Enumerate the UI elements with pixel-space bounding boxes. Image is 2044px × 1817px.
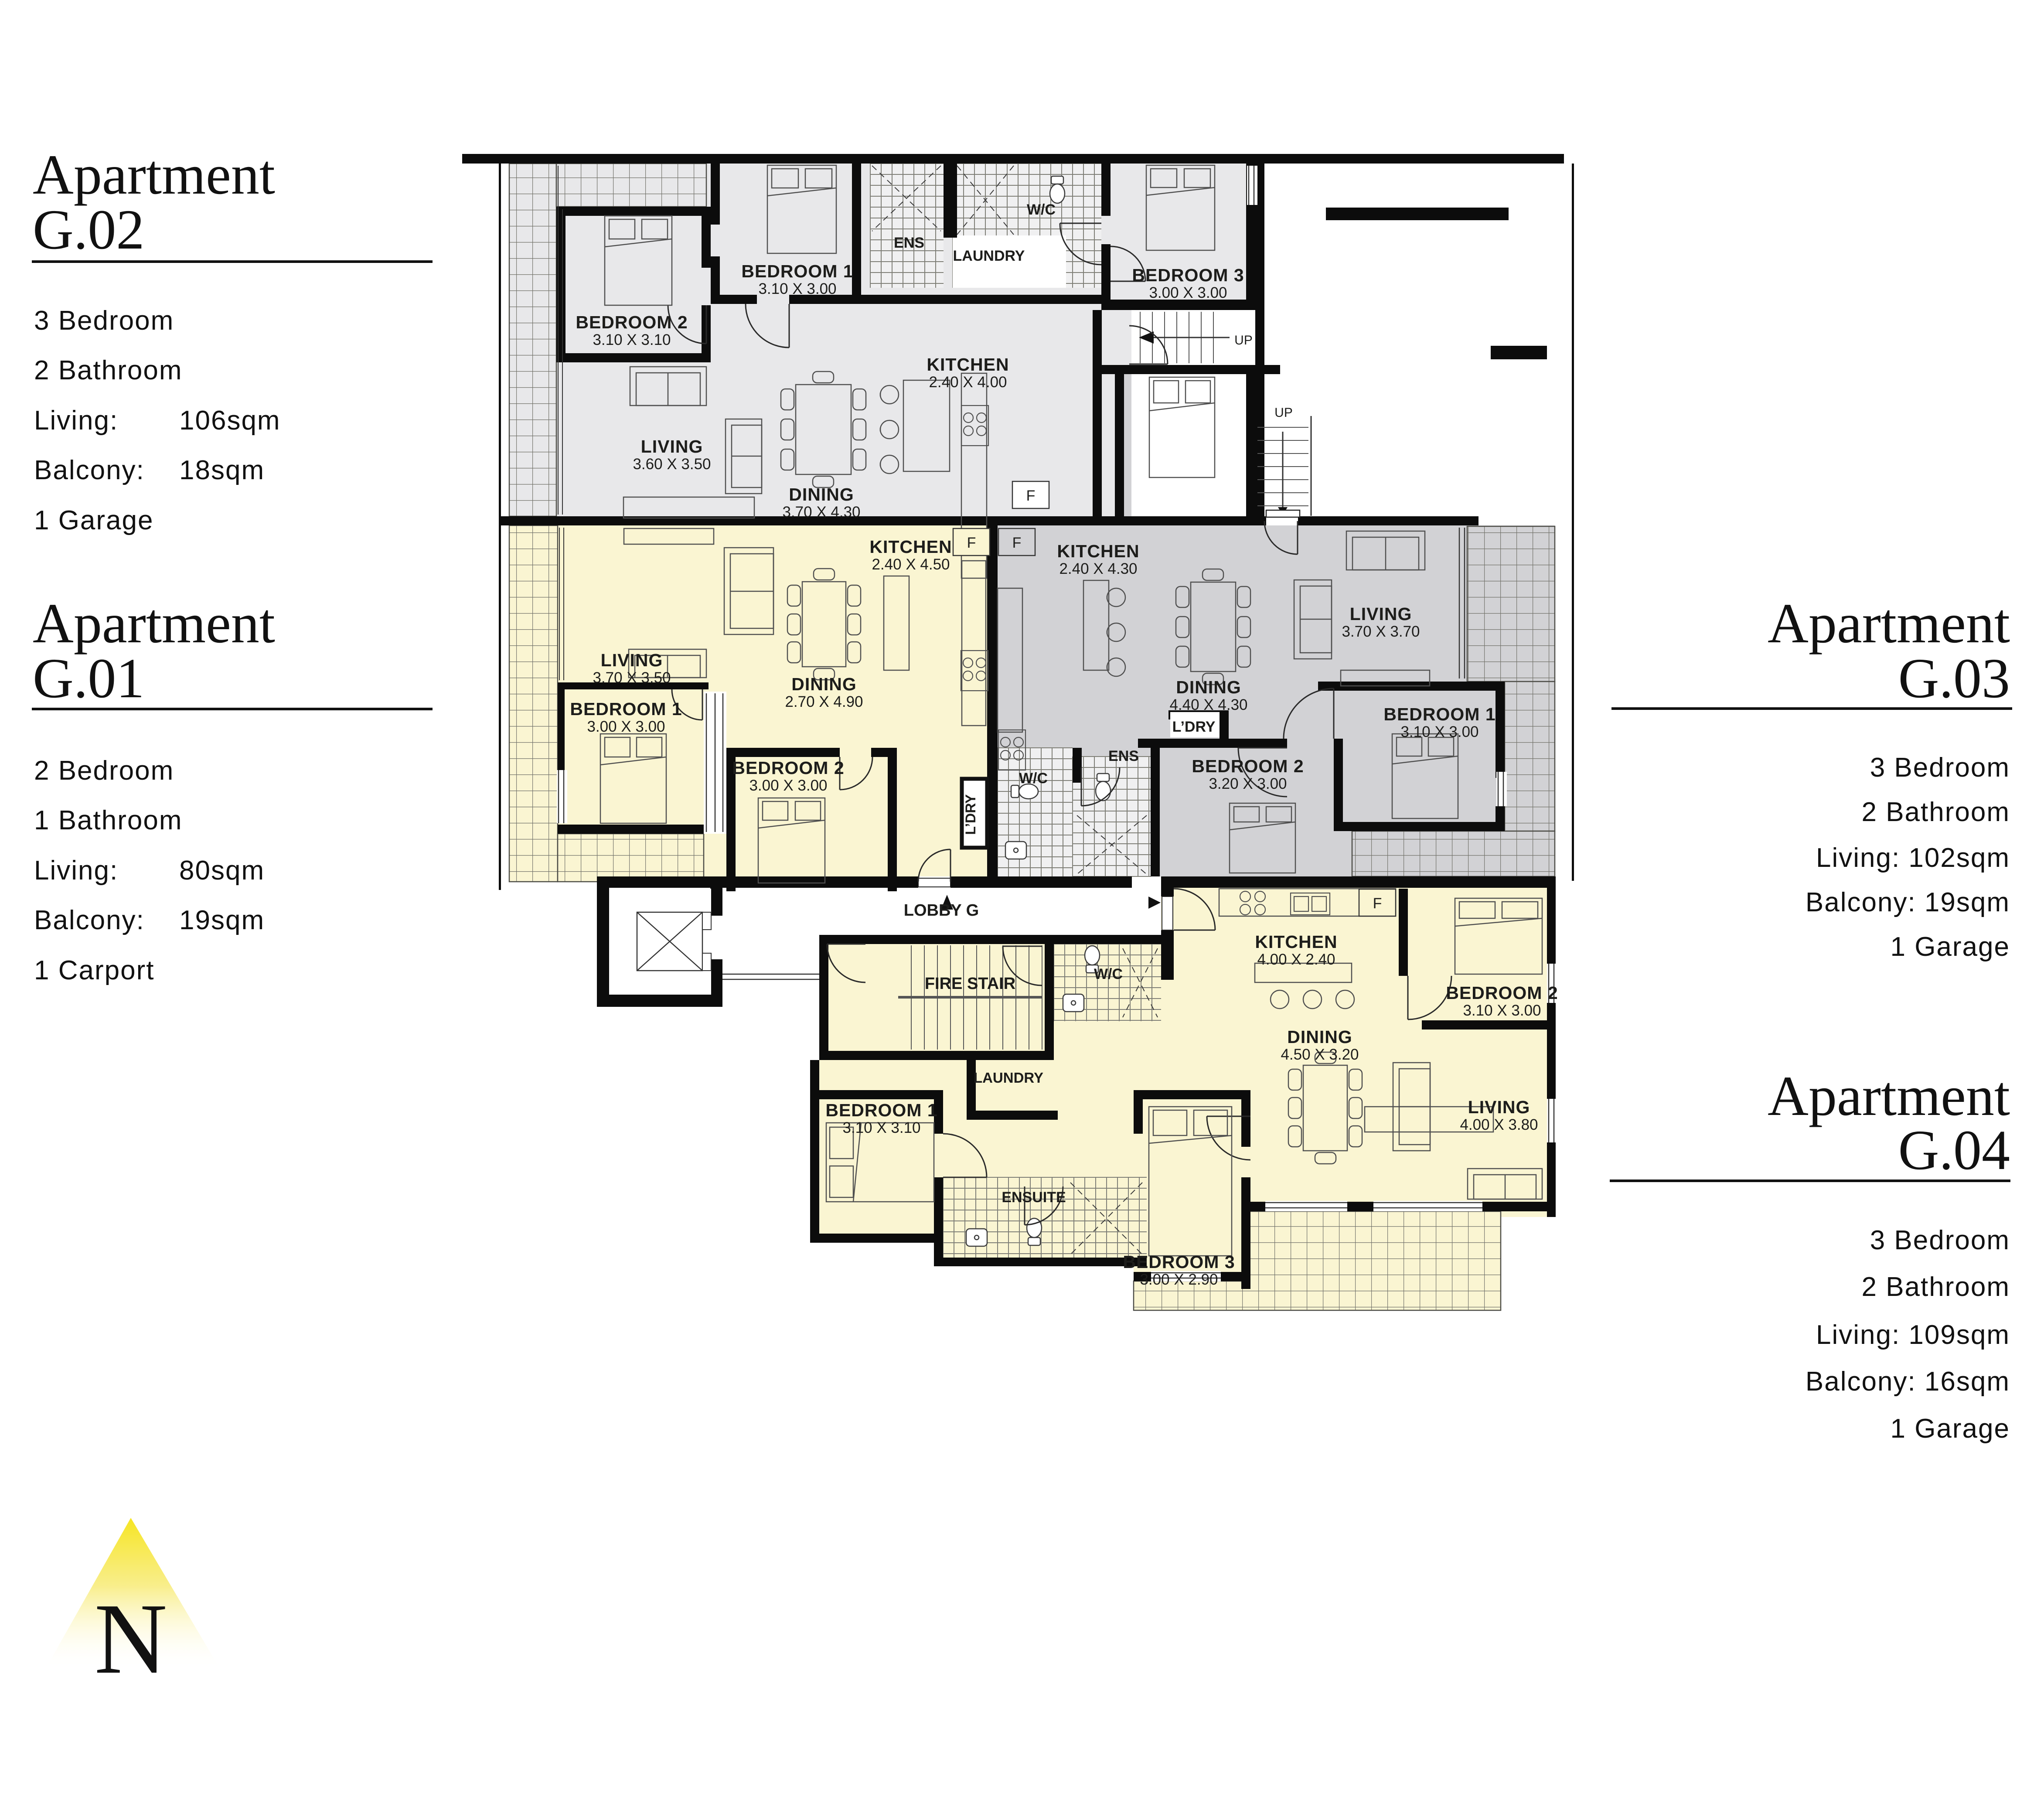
- svg-text:Balcony:: Balcony:: [34, 455, 145, 485]
- svg-text:3.00 X 3.00: 3.00 X 3.00: [749, 777, 827, 794]
- svg-text:LAUNDRY: LAUNDRY: [974, 1070, 1043, 1086]
- svg-text:LAUNDRY: LAUNDRY: [953, 248, 1025, 264]
- svg-text:Living:: Living:: [34, 856, 118, 886]
- svg-text:3 Bedroom: 3 Bedroom: [34, 306, 174, 336]
- svg-text:Living: 109sqm: Living: 109sqm: [1816, 1320, 2010, 1350]
- svg-text:2.70 X 4.90: 2.70 X 4.90: [785, 693, 863, 710]
- svg-text:3.10 X 3.00: 3.10 X 3.00: [1400, 723, 1478, 740]
- svg-text:LIVING: LIVING: [601, 650, 663, 670]
- svg-text:1 Garage: 1 Garage: [1890, 932, 2010, 962]
- svg-text:3.70 X 3.70: 3.70 X 3.70: [1342, 623, 1420, 640]
- svg-text:LIVING: LIVING: [641, 436, 703, 457]
- svg-text:BEDROOM 2: BEDROOM 2: [1446, 983, 1558, 1003]
- svg-text:ENS: ENS: [894, 235, 924, 251]
- svg-text:3.00 X 2.90: 3.00 X 2.90: [1140, 1271, 1218, 1288]
- svg-text:3.00 X 3.00: 3.00 X 3.00: [1149, 284, 1227, 301]
- svg-text:F: F: [1012, 535, 1022, 551]
- svg-text:F: F: [967, 535, 976, 551]
- svg-text:1 Garage: 1 Garage: [34, 505, 154, 535]
- svg-text:Apartment: Apartment: [1768, 592, 2010, 655]
- svg-text:3.60 X 3.50: 3.60 X 3.50: [633, 456, 711, 473]
- svg-text:3.20 X 3.00: 3.20 X 3.00: [1209, 775, 1287, 792]
- svg-text:80sqm: 80sqm: [179, 856, 265, 886]
- svg-text:3.10 X 3.10: 3.10 X 3.10: [842, 1119, 920, 1136]
- svg-text:Living: 102sqm: Living: 102sqm: [1816, 843, 2010, 873]
- svg-text:W/C: W/C: [1019, 770, 1048, 787]
- svg-text:KITCHEN: KITCHEN: [1255, 932, 1337, 952]
- svg-text:UP: UP: [1234, 333, 1253, 348]
- svg-text:LOBBY G: LOBBY G: [904, 901, 979, 920]
- svg-text:1 Carport: 1 Carport: [34, 955, 154, 985]
- svg-text:G.01: G.01: [33, 647, 144, 710]
- svg-text:106sqm: 106sqm: [179, 406, 281, 436]
- svg-text:BEDROOM 2: BEDROOM 2: [576, 312, 688, 332]
- svg-text:ENS: ENS: [1108, 748, 1139, 764]
- svg-text:L’DRY: L’DRY: [963, 794, 978, 835]
- svg-text:3.10 X 3.10: 3.10 X 3.10: [593, 331, 671, 348]
- svg-text:Balcony:: Balcony:: [34, 905, 145, 935]
- svg-text:BEDROOM 3: BEDROOM 3: [1123, 1252, 1235, 1272]
- svg-text:N: N: [94, 1583, 167, 1695]
- svg-text:1 Garage: 1 Garage: [1890, 1414, 2010, 1444]
- svg-text:Apartment: Apartment: [33, 143, 275, 206]
- svg-text:DINING: DINING: [789, 484, 854, 505]
- svg-text:3.70 X 3.50: 3.70 X 3.50: [593, 669, 671, 686]
- svg-text:Living:: Living:: [34, 406, 118, 436]
- svg-text:BEDROOM 1: BEDROOM 1: [741, 261, 853, 281]
- svg-text:BEDROOM 3: BEDROOM 3: [1132, 265, 1244, 285]
- svg-text:2.40 X 4.30: 2.40 X 4.30: [1059, 560, 1137, 577]
- svg-text:Balcony: 16sqm: Balcony: 16sqm: [1806, 1367, 2010, 1397]
- svg-text:LIVING: LIVING: [1468, 1097, 1530, 1117]
- svg-text:BEDROOM 1: BEDROOM 1: [825, 1100, 937, 1120]
- svg-text:18sqm: 18sqm: [179, 455, 265, 485]
- svg-text:2 Bathroom: 2 Bathroom: [1861, 797, 2010, 827]
- svg-text:LIVING: LIVING: [1350, 604, 1412, 624]
- svg-text:G.02: G.02: [33, 198, 144, 261]
- svg-text:2.40 X 4.00: 2.40 X 4.00: [929, 374, 1007, 391]
- svg-text:3.00 X 3.00: 3.00 X 3.00: [587, 718, 665, 735]
- svg-text:DINING: DINING: [1287, 1027, 1352, 1047]
- svg-text:Apartment: Apartment: [1768, 1065, 2010, 1128]
- svg-text:Apartment: Apartment: [33, 592, 275, 655]
- svg-text:3.10 X 3.00: 3.10 X 3.00: [1463, 1002, 1541, 1019]
- svg-text:3.70 X 4.30: 3.70 X 4.30: [782, 504, 860, 521]
- svg-text:DINING: DINING: [1176, 677, 1241, 697]
- svg-text:F: F: [1026, 487, 1036, 504]
- svg-text:BEDROOM 1: BEDROOM 1: [570, 699, 682, 719]
- svg-text:DINING: DINING: [791, 674, 857, 694]
- svg-text:W/C: W/C: [1094, 966, 1123, 982]
- svg-text:4.40 X 4.30: 4.40 X 4.30: [1169, 696, 1247, 713]
- svg-text:ENSUITE: ENSUITE: [1002, 1189, 1066, 1206]
- svg-text:3 Bedroom: 3 Bedroom: [1870, 1225, 2010, 1255]
- svg-text:2 Bathroom: 2 Bathroom: [1861, 1272, 2010, 1302]
- svg-text:BEDROOM 1: BEDROOM 1: [1383, 704, 1496, 724]
- svg-text:W/C: W/C: [1027, 201, 1056, 218]
- svg-text:1 Bathroom: 1 Bathroom: [34, 805, 183, 835]
- svg-text:KITCHEN: KITCHEN: [927, 355, 1009, 375]
- svg-text:2.40 X 4.50: 2.40 X 4.50: [872, 556, 950, 573]
- svg-text:BEDROOM 2: BEDROOM 2: [732, 758, 844, 778]
- svg-text:19sqm: 19sqm: [179, 905, 265, 935]
- svg-text:4.00 X 3.80: 4.00 X 3.80: [1460, 1116, 1538, 1133]
- svg-text:KITCHEN: KITCHEN: [1057, 541, 1139, 561]
- svg-text:4.00 X 2.40: 4.00 X 2.40: [1257, 951, 1335, 968]
- svg-text:F: F: [1373, 895, 1382, 912]
- svg-text:FIRE STAIR: FIRE STAIR: [925, 975, 1015, 993]
- svg-text:Balcony: 19sqm: Balcony: 19sqm: [1806, 887, 2010, 917]
- svg-text:L’DRY: L’DRY: [1172, 719, 1216, 735]
- svg-text:KITCHEN: KITCHEN: [869, 537, 952, 557]
- svg-text:2 Bedroom: 2 Bedroom: [34, 756, 174, 786]
- svg-text:G.03: G.03: [1898, 647, 2010, 710]
- svg-text:UP: UP: [1274, 406, 1293, 420]
- svg-text:2 Bathroom: 2 Bathroom: [34, 355, 183, 385]
- svg-text:G.04: G.04: [1898, 1119, 2010, 1182]
- svg-text:3.10 X 3.00: 3.10 X 3.00: [758, 280, 836, 297]
- svg-text:4.50 X 3.20: 4.50 X 3.20: [1281, 1046, 1359, 1063]
- svg-text:3 Bedroom: 3 Bedroom: [1870, 753, 2010, 783]
- svg-text:BEDROOM 2: BEDROOM 2: [1192, 756, 1304, 776]
